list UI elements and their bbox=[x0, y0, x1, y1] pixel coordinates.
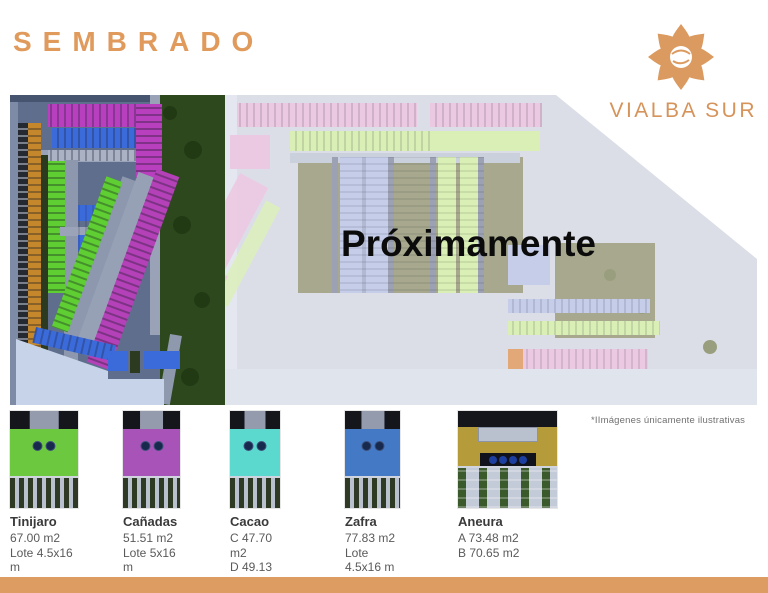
canadas-label: Cañadas 51.51 m2 Lote 5x16 m bbox=[123, 514, 180, 575]
cacao-thumbnail[interactable] bbox=[230, 411, 280, 508]
legend-item-cacao: Cacao C 47.70 m2 D 49.13 m2 Lote 5xx16 m bbox=[230, 411, 280, 593]
aneura-thumbnail[interactable] bbox=[458, 411, 557, 508]
map-active-section bbox=[10, 95, 225, 405]
legend-item-canadas: Cañadas 51.51 m2 Lote 5x16 m bbox=[123, 411, 180, 575]
page-title: SEMBRADO bbox=[13, 26, 264, 58]
site-plan-map[interactable]: Próximamente bbox=[10, 95, 757, 405]
tinijaro-thumbnail[interactable] bbox=[10, 411, 78, 508]
page: SEMBRADO VIALBA SUR bbox=[0, 0, 768, 593]
vialba-flower-icon bbox=[646, 22, 716, 92]
canadas-thumbnail[interactable] bbox=[123, 411, 180, 508]
zafra-thumbnail[interactable] bbox=[345, 411, 400, 508]
legend-item-tinijaro: Tinijaro 67.00 m2 Lote 4.5x16 m bbox=[10, 411, 78, 575]
legend-item-zafra: Zafra 77.83 m2 Lote 4.5x16 m bbox=[345, 411, 400, 575]
footer-bar bbox=[0, 577, 768, 593]
zafra-label: Zafra 77.83 m2 Lote 4.5x16 m bbox=[345, 514, 400, 575]
disclaimer-text: *IImágenes únicamente ilustrativas bbox=[591, 415, 745, 426]
coming-soon-text: Próximamente bbox=[341, 223, 596, 264]
legend-item-aneura: Aneura A 73.48 m2 B 70.65 m2 bbox=[458, 411, 557, 560]
aneura-label: Aneura A 73.48 m2 B 70.65 m2 bbox=[458, 514, 557, 560]
tinijaro-label: Tinijaro 67.00 m2 Lote 4.5x16 m bbox=[10, 514, 78, 575]
